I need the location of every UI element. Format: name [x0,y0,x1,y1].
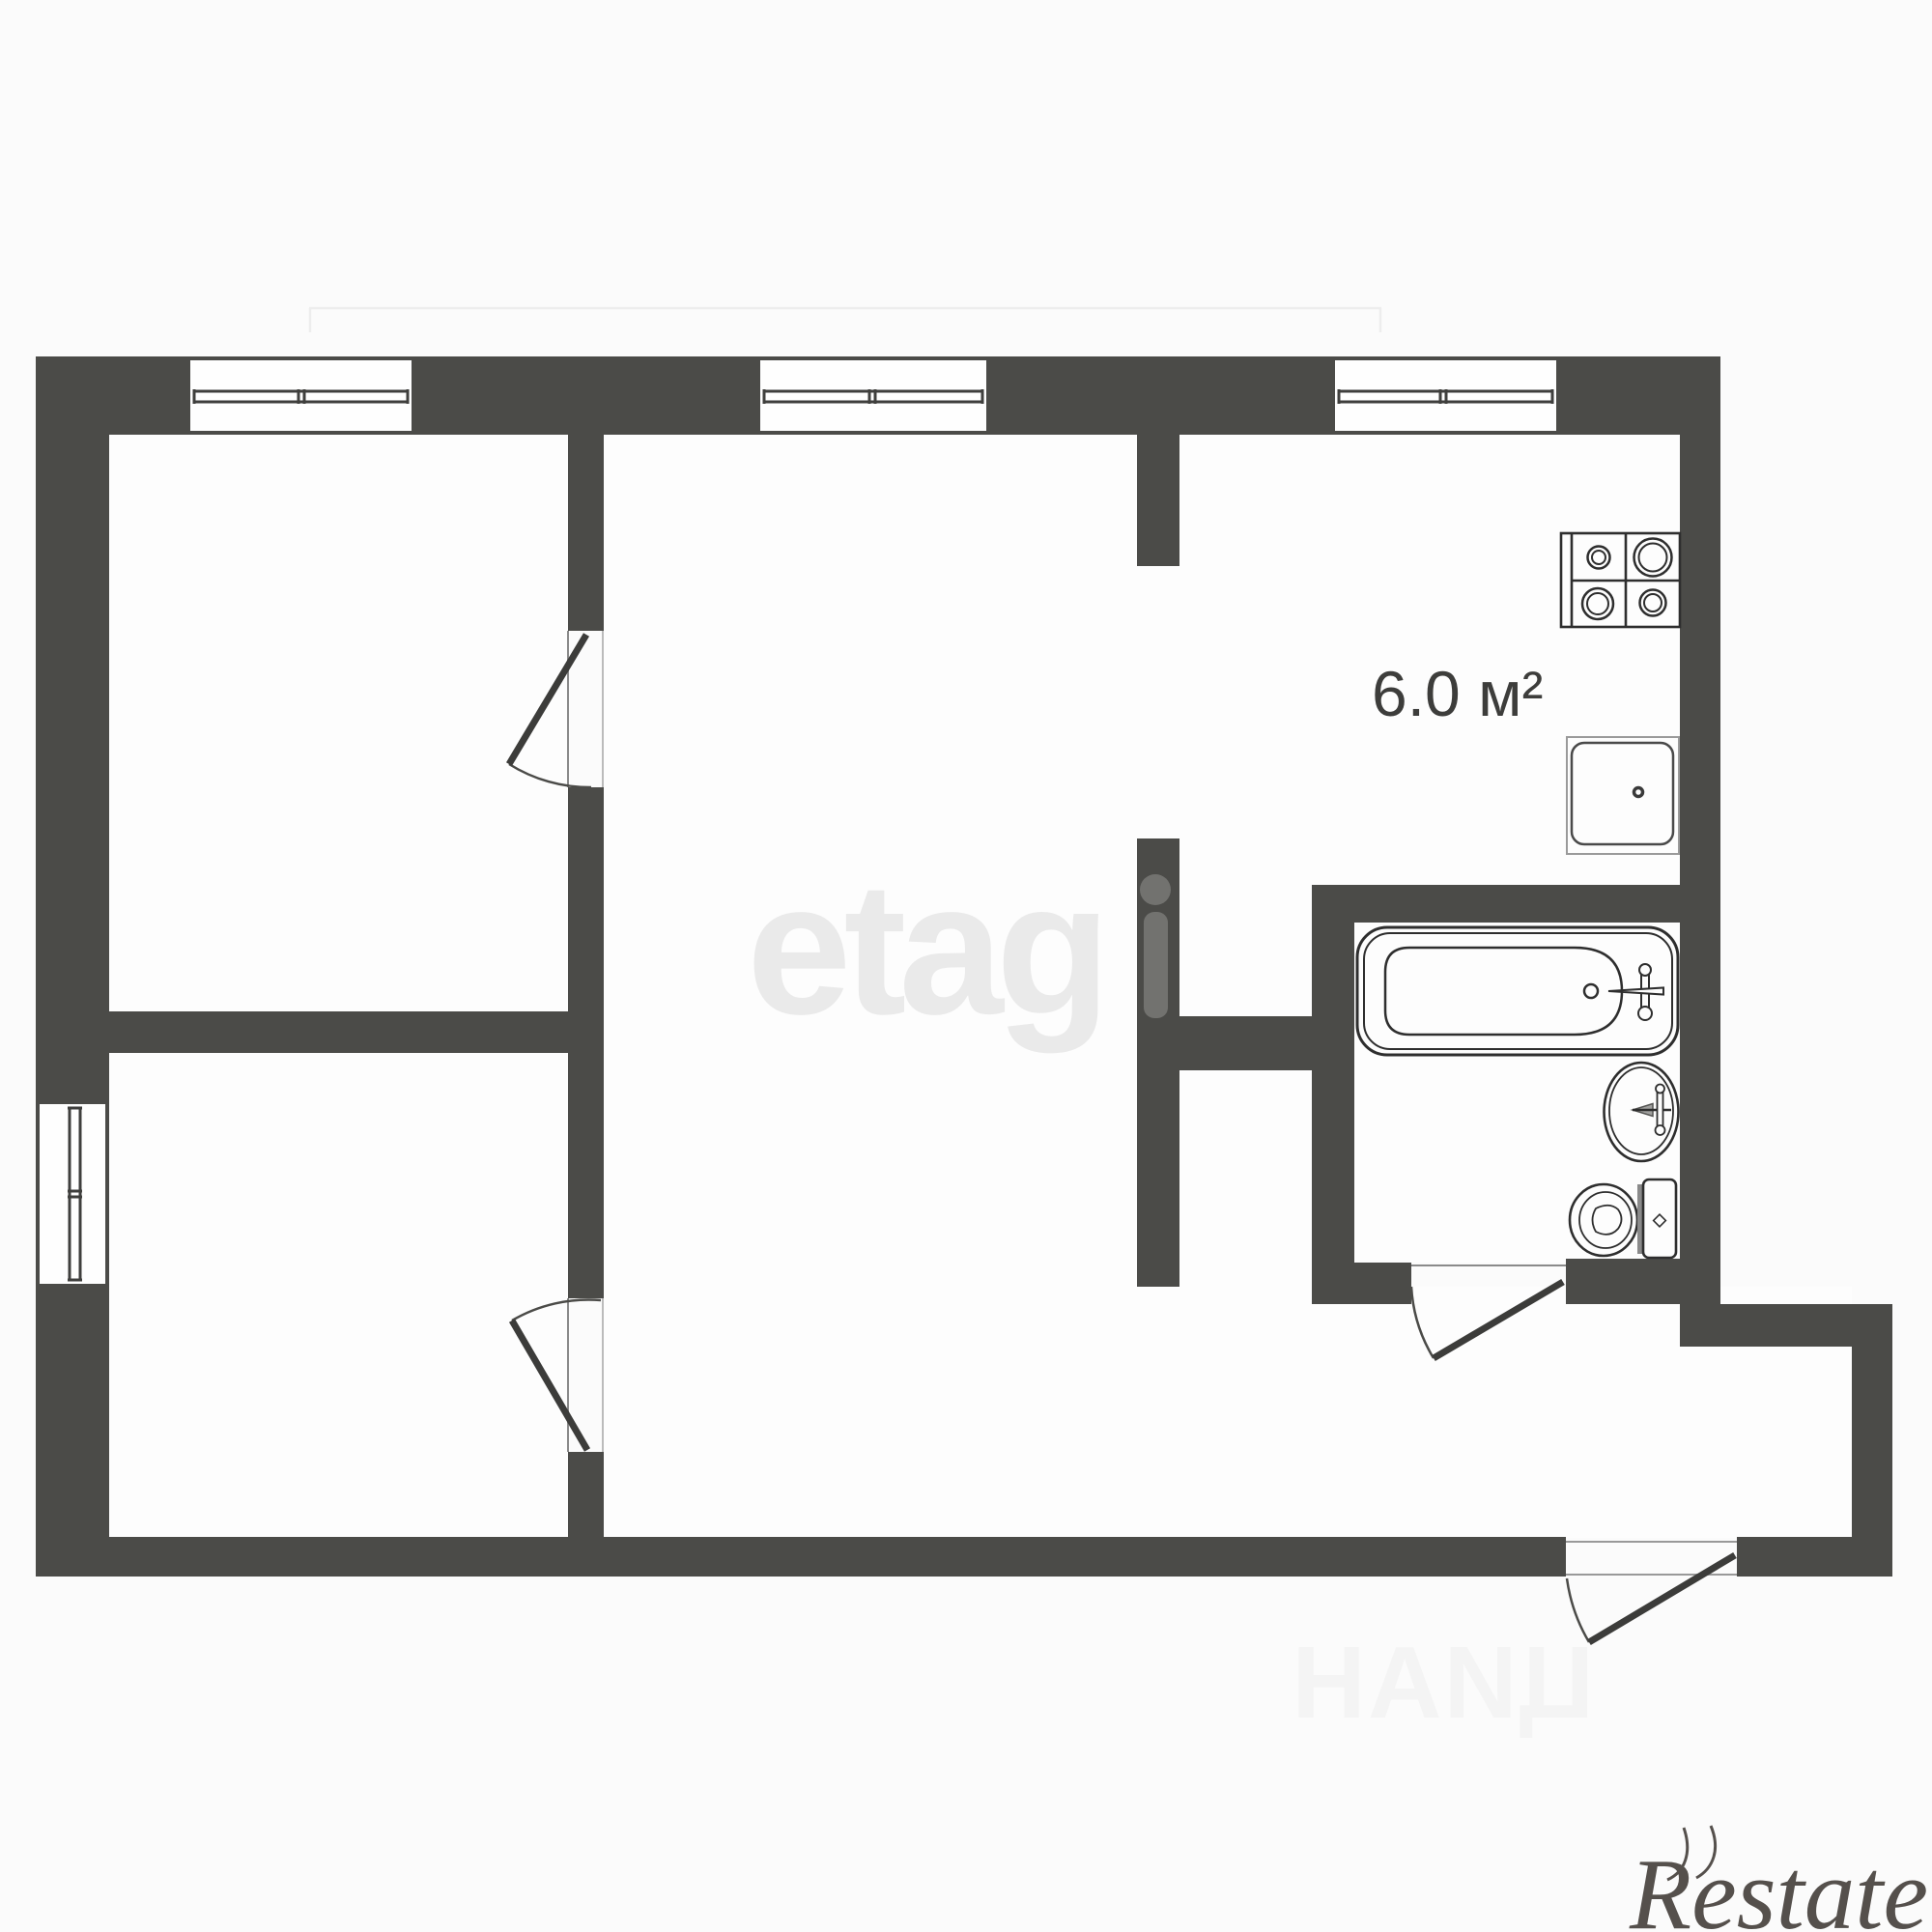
svg-text:ЦИАН: ЦИАН [1290,1626,1594,1740]
svg-text:6.0 м²: 6.0 м² [1372,658,1543,729]
svg-text:etag: etag [747,843,1103,1054]
svg-text:Restate: Restate [1629,1837,1928,1932]
